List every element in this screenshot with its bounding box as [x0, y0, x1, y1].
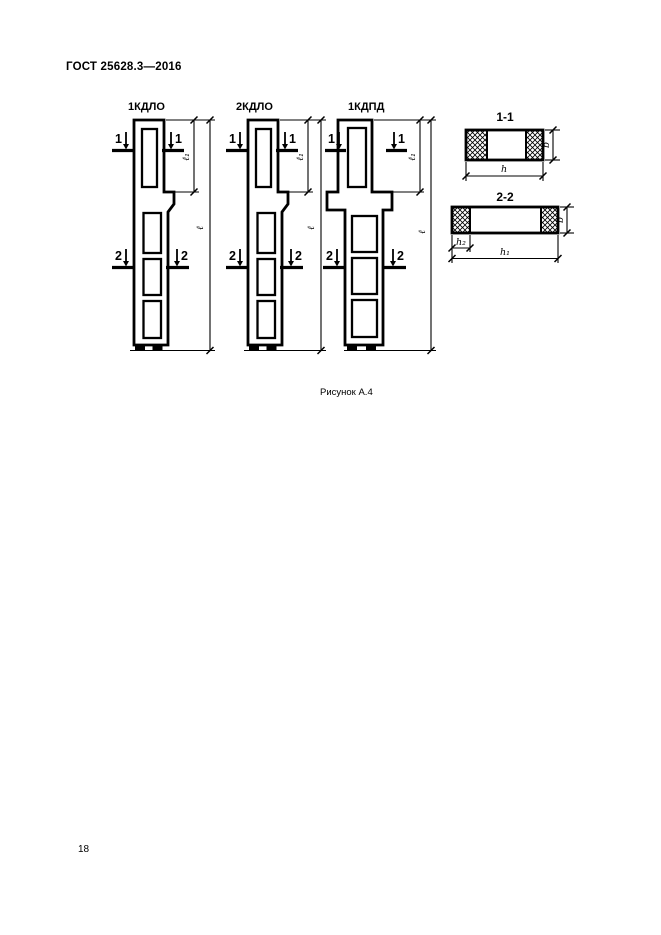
column-drawing-2: 2КДЛО 1 1 2 [226, 101, 326, 354]
column-label: 1КДПД [348, 101, 385, 113]
column-label: 2КДЛО [236, 101, 273, 113]
cut-number: 2 [115, 249, 122, 263]
column-label: 1КДЛО [128, 101, 165, 113]
lower-opening [258, 259, 276, 295]
cut-arrow-icon [174, 261, 180, 267]
section-cut-mark-1-right: 1 [386, 132, 407, 151]
cut-arrow-icon [123, 261, 129, 267]
section-title: 1-1 [496, 110, 514, 124]
section-cut-mark-2-left: 2 [112, 249, 133, 268]
lower-opening [352, 258, 377, 294]
cut-number: 1 [328, 132, 335, 146]
cut-number: 1 [398, 132, 405, 146]
document-page: ГОСТ 25628.3—2016 1КДЛО 1 [0, 0, 661, 935]
figure-a4-drawing: 1КДЛО 1 1 2 [0, 0, 661, 420]
cut-number: 2 [397, 249, 404, 263]
base-foot [347, 345, 357, 351]
cut-arrow-icon [288, 261, 294, 267]
cut-arrow-icon [168, 144, 174, 150]
lower-opening [352, 300, 377, 337]
cut-arrow-icon [123, 144, 129, 150]
cut-number: 2 [295, 249, 302, 263]
section-cut-mark-1-left: 1 [226, 132, 247, 151]
cut-arrow-icon [237, 261, 243, 267]
hatched-flange [452, 207, 470, 233]
dim-label-h: h [501, 164, 507, 175]
dim-label-h1: h₁ [500, 247, 510, 258]
column-drawing-3: 1КДПД 1 1 2 [323, 101, 436, 354]
dim-label-h2: h₂ [456, 237, 466, 248]
upper-slot-opening [142, 129, 157, 187]
lower-opening [258, 213, 276, 253]
base-foot [366, 345, 376, 351]
dim-label-l1: ℓ₁ [295, 153, 306, 161]
dim-label-l: ℓ [306, 226, 317, 230]
cut-number: 1 [289, 132, 296, 146]
section-cut-mark-2-left: 2 [226, 249, 247, 268]
section-cut-mark-2-right: 2 [384, 249, 406, 268]
cut-arrow-icon [282, 144, 288, 150]
section-cut-mark-1-left: 1 [112, 132, 133, 151]
base-foot [135, 345, 145, 351]
section-view-2-2: 2-2 b h₂ h₁ [449, 190, 575, 263]
dim-label-l1: ℓ₁ [407, 153, 418, 161]
cut-number: 1 [229, 132, 236, 146]
section-cut-mark-2-right: 2 [280, 249, 303, 268]
lower-opening [352, 216, 377, 252]
cut-number: 2 [181, 249, 188, 263]
base-foot [153, 345, 163, 351]
base-foot [267, 345, 277, 351]
hatched-flange [466, 130, 487, 160]
lower-opening [144, 213, 162, 253]
lower-opening [144, 301, 162, 338]
dim-label-l: ℓ [195, 226, 206, 230]
cut-arrow-icon [391, 144, 397, 150]
dim-label-b: b [555, 217, 566, 223]
cut-number: 1 [115, 132, 122, 146]
base-foot [249, 345, 259, 351]
upper-slot-opening [256, 129, 271, 187]
dim-label-l: ℓ [417, 230, 428, 234]
cut-number: 2 [326, 249, 333, 263]
lower-opening [258, 301, 276, 338]
column-drawing-1: 1КДЛО 1 1 2 [112, 101, 215, 354]
cut-arrow-icon [237, 144, 243, 150]
section-title: 2-2 [496, 190, 514, 204]
dim-label-l1: ℓ₁ [181, 153, 192, 161]
cut-arrow-icon [390, 261, 396, 267]
cut-number: 1 [175, 132, 182, 146]
upper-slot-opening [348, 128, 366, 187]
section-cut-mark-2-left: 2 [323, 249, 344, 268]
section-cut-mark-2-right: 2 [166, 249, 189, 268]
cut-number: 2 [229, 249, 236, 263]
section-view-1-1: 1-1 b h [463, 110, 561, 181]
figure-caption: Рисунок А.4 [320, 387, 373, 398]
cut-arrow-icon [334, 261, 340, 267]
page-number: 18 [78, 844, 89, 855]
lower-opening [144, 259, 162, 295]
dim-label-b: b [541, 142, 552, 148]
